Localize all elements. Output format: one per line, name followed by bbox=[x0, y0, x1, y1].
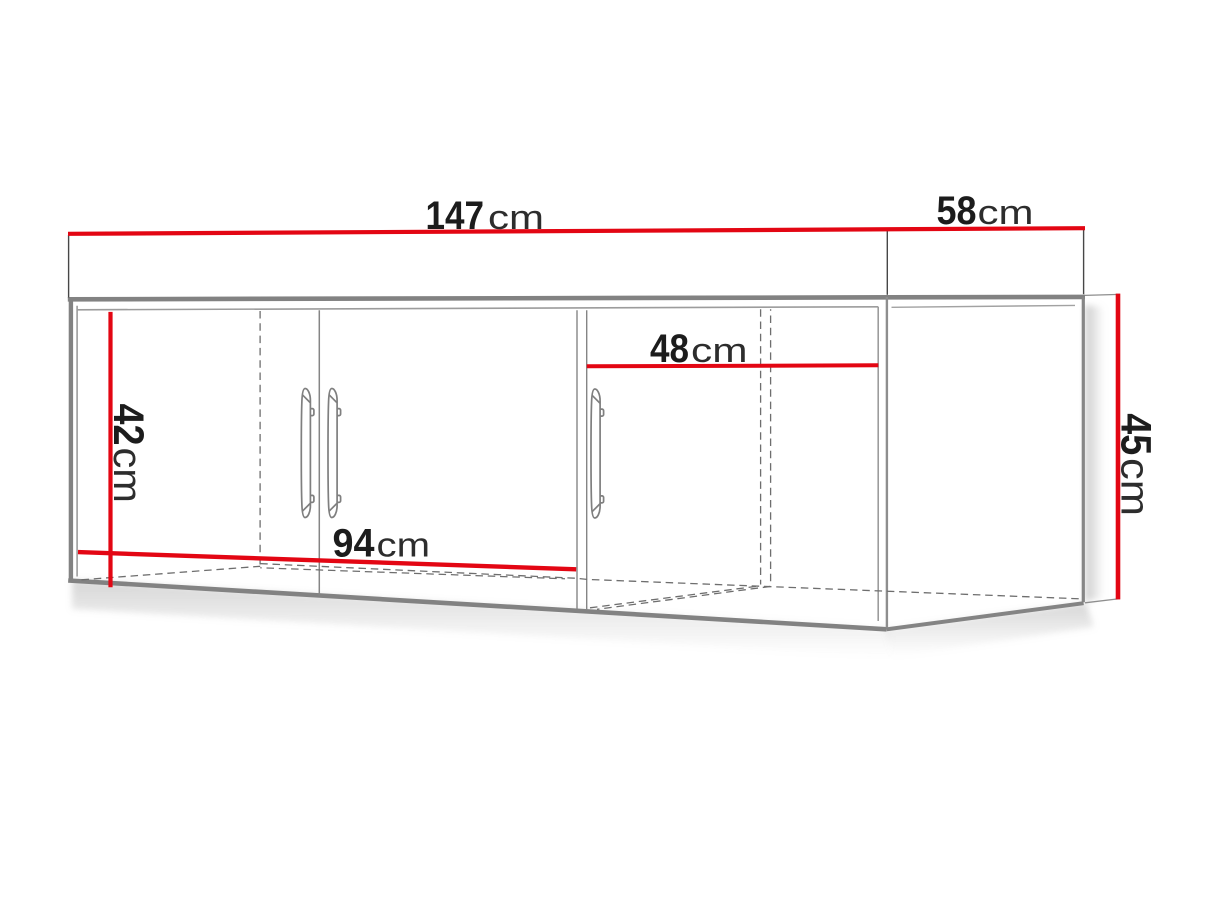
svg-text:cm: cm bbox=[377, 527, 431, 565]
svg-text:48: 48 bbox=[650, 327, 689, 371]
svg-text:94: 94 bbox=[333, 522, 376, 566]
svg-text:58: 58 bbox=[937, 189, 977, 233]
svg-text:cm: cm bbox=[105, 448, 149, 504]
svg-text:cm: cm bbox=[488, 199, 544, 237]
svg-text:cm: cm bbox=[978, 194, 1034, 232]
svg-text:42: 42 bbox=[104, 404, 152, 446]
svg-text:cm: cm bbox=[1112, 458, 1156, 516]
svg-text:cm: cm bbox=[691, 332, 748, 370]
svg-text:45: 45 bbox=[1111, 413, 1159, 455]
svg-text:147: 147 bbox=[426, 194, 485, 238]
